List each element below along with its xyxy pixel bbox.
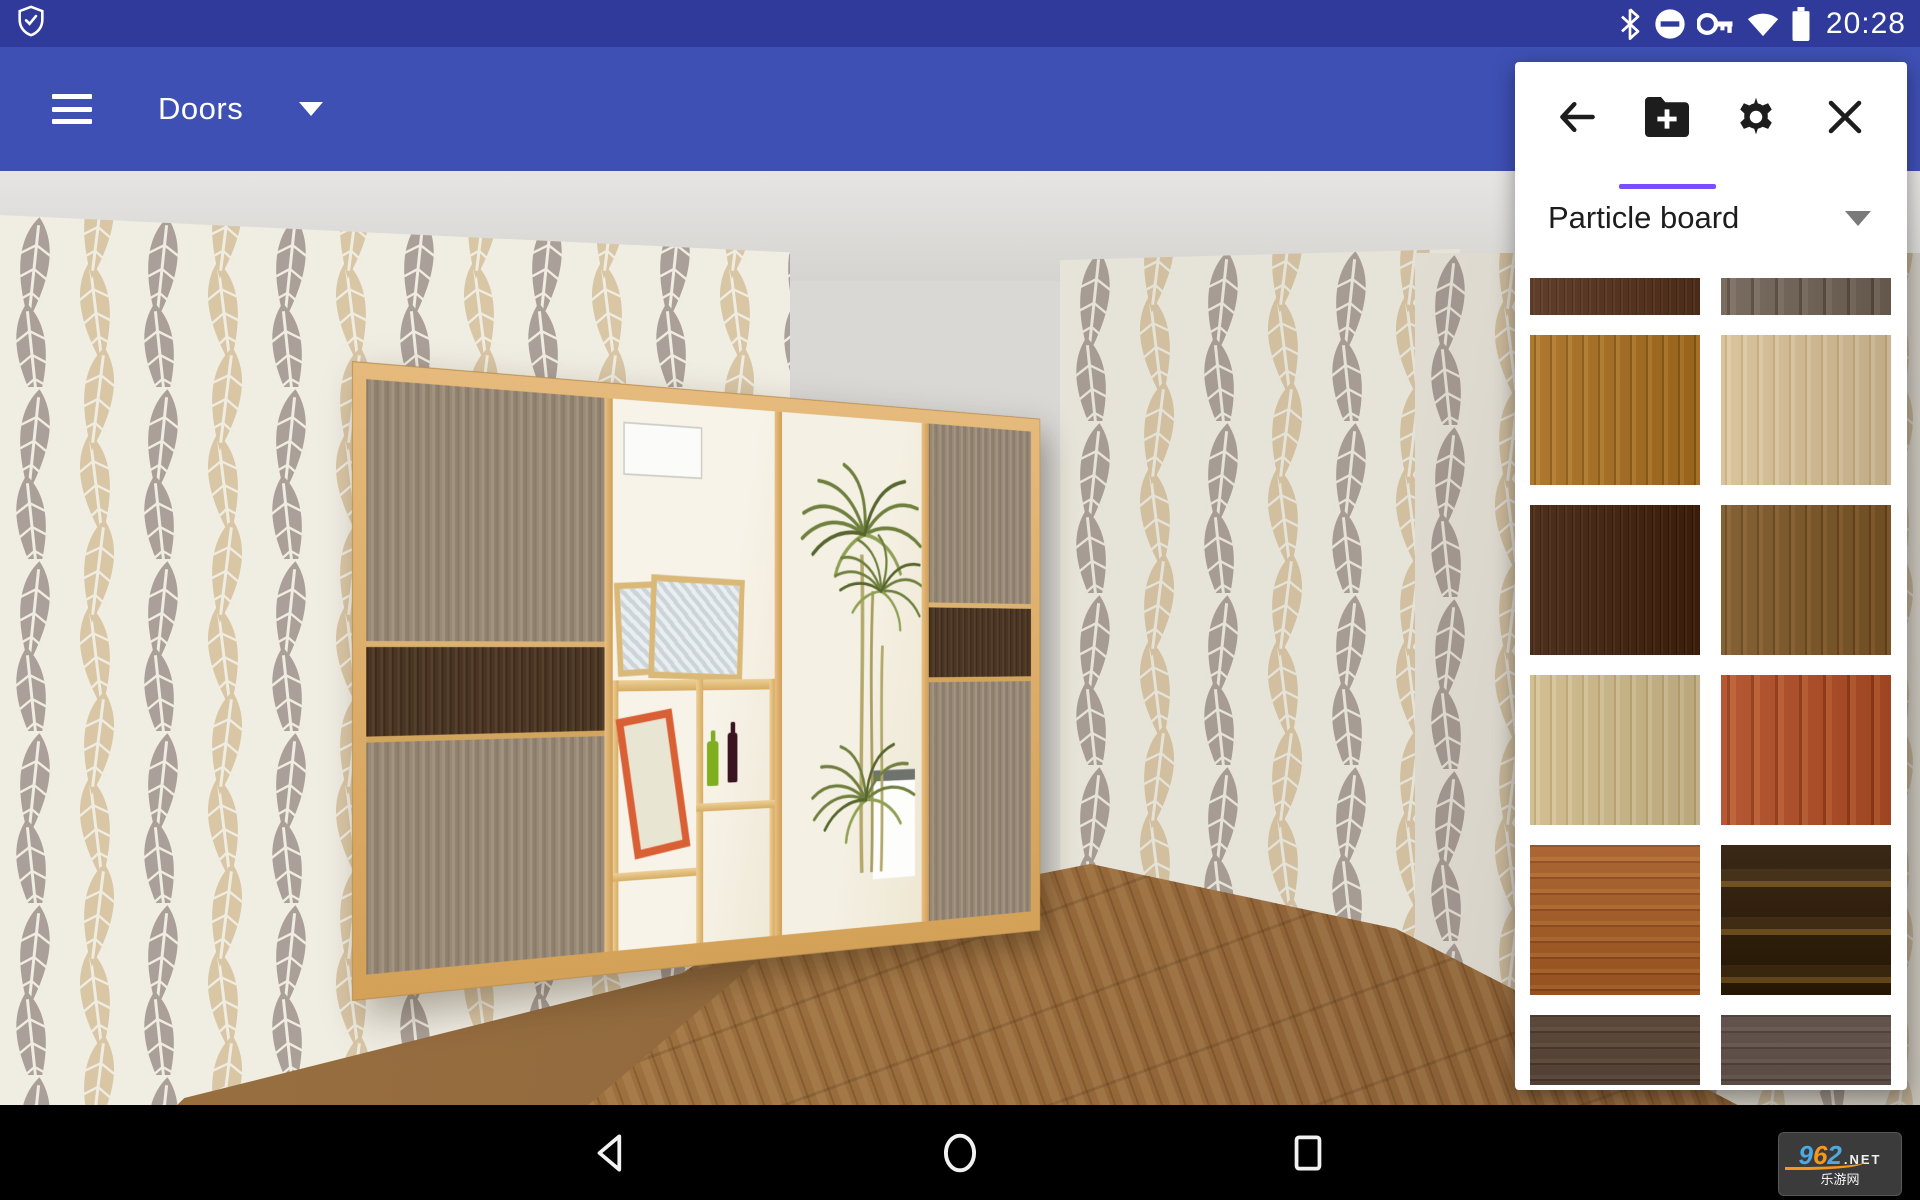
watermark-badge: 962 .NET 乐游网 <box>1778 1132 1902 1196</box>
add-folder-button[interactable] <box>1635 85 1699 149</box>
texture-swatch-grid <box>1530 278 1892 1085</box>
picture-frame-glass-2 <box>648 574 745 681</box>
texture-swatch-red-cherry[interactable] <box>1721 675 1891 825</box>
green-bottle <box>707 741 718 786</box>
watermark-swoosh <box>1785 1159 1865 1170</box>
watermark-name: 乐游网 <box>1820 1173 1859 1186</box>
bluetooth-icon <box>1617 8 1643 40</box>
gear-icon <box>1734 95 1778 139</box>
back-button[interactable] <box>1546 85 1610 149</box>
dark-bottle <box>728 732 738 782</box>
close-button[interactable] <box>1813 85 1877 149</box>
clock: 20:28 <box>1826 7 1906 41</box>
nav-recents-button[interactable] <box>1273 1118 1343 1188</box>
screen: 20:28 Doors Particle board 962 .NET 乐游网 <box>0 0 1920 1200</box>
mirror-door[interactable] <box>782 412 922 935</box>
materials-panel: Particle board <box>1515 62 1907 1090</box>
texture-swatch-calvados[interactable] <box>1530 845 1700 995</box>
close-icon <box>1824 96 1866 138</box>
wardrobe-3d[interactable] <box>352 361 1040 1001</box>
frame-stile <box>775 411 783 935</box>
active-tab-underline <box>1619 184 1716 189</box>
texture-swatch-walnut[interactable] <box>1721 505 1891 655</box>
frame-stile <box>922 423 929 922</box>
door-accent-band <box>366 641 604 742</box>
texture-swatch-gray-walnut[interactable] <box>1721 1015 1891 1085</box>
window-reflection <box>623 421 702 479</box>
texture-swatch-dark-red-brown[interactable] <box>1530 278 1700 315</box>
battery-icon <box>1791 7 1811 41</box>
status-bar: 20:28 <box>0 0 1920 47</box>
do-not-disturb-icon <box>1654 8 1686 40</box>
wardrobe-frame <box>352 361 1040 1001</box>
texture-swatch-rosewood-stripe[interactable] <box>1721 845 1891 995</box>
sliding-door-right[interactable] <box>929 424 1031 922</box>
texture-swatch-cream-birch[interactable] <box>1530 675 1700 825</box>
door-accent-band <box>929 603 1031 683</box>
texture-swatch-dark-walnut[interactable] <box>1530 1015 1700 1085</box>
material-category-value: Particle board <box>1548 200 1739 236</box>
orange-picture-frame <box>615 708 690 860</box>
texture-swatch-espresso[interactable] <box>1530 505 1700 655</box>
page-title: Doors <box>158 91 243 127</box>
arrow-left-icon <box>1556 95 1600 139</box>
frame-stile <box>604 398 613 952</box>
settings-button[interactable] <box>1724 85 1788 149</box>
material-category-select[interactable]: Particle board <box>1548 200 1871 236</box>
texture-swatch-gray-bark[interactable] <box>1721 278 1891 315</box>
caret-down-icon[interactable] <box>299 102 323 116</box>
shield-check-icon <box>14 4 48 43</box>
shelf-top-board <box>613 679 775 692</box>
shelf-board <box>696 799 775 811</box>
android-nav-bar <box>0 1105 1920 1200</box>
nav-home-button[interactable] <box>925 1118 995 1188</box>
shelf-board <box>613 868 696 882</box>
vpn-key-icon <box>1697 9 1735 39</box>
texture-swatch-golden-oak[interactable] <box>1530 335 1700 485</box>
texture-swatch-light-oak[interactable] <box>1721 335 1891 485</box>
wifi-icon <box>1746 10 1780 38</box>
panel-header <box>1515 62 1907 172</box>
open-shelf-section[interactable] <box>613 399 775 952</box>
hamburger-icon[interactable] <box>52 94 92 124</box>
nav-back-button[interactable] <box>577 1118 647 1188</box>
caret-down-icon <box>1845 211 1871 226</box>
folder-plus-icon <box>1643 95 1691 139</box>
sliding-door-left[interactable] <box>366 379 604 975</box>
